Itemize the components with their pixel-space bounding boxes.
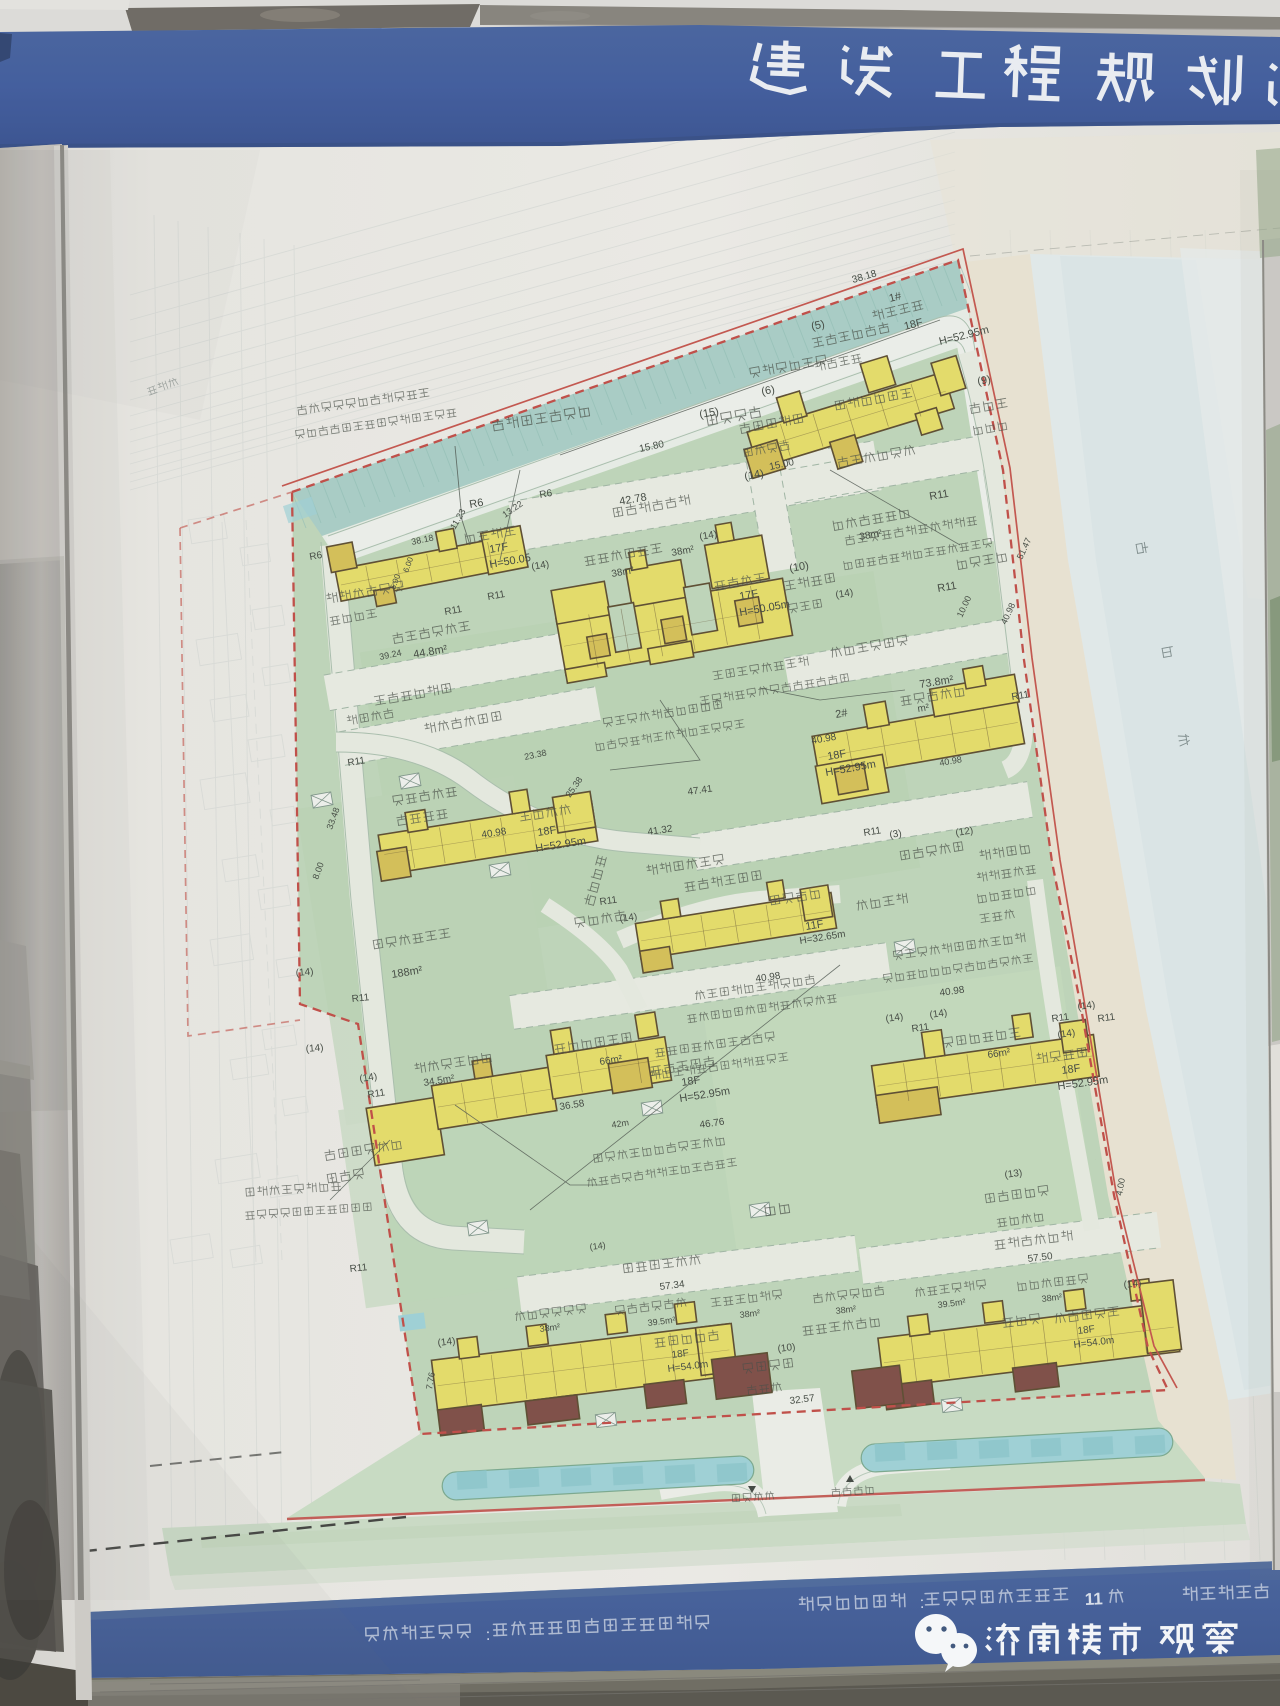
svg-text::: : <box>920 1595 925 1612</box>
svg-text:11: 11 <box>1084 1589 1103 1609</box>
svg-text::: : <box>486 1627 491 1644</box>
